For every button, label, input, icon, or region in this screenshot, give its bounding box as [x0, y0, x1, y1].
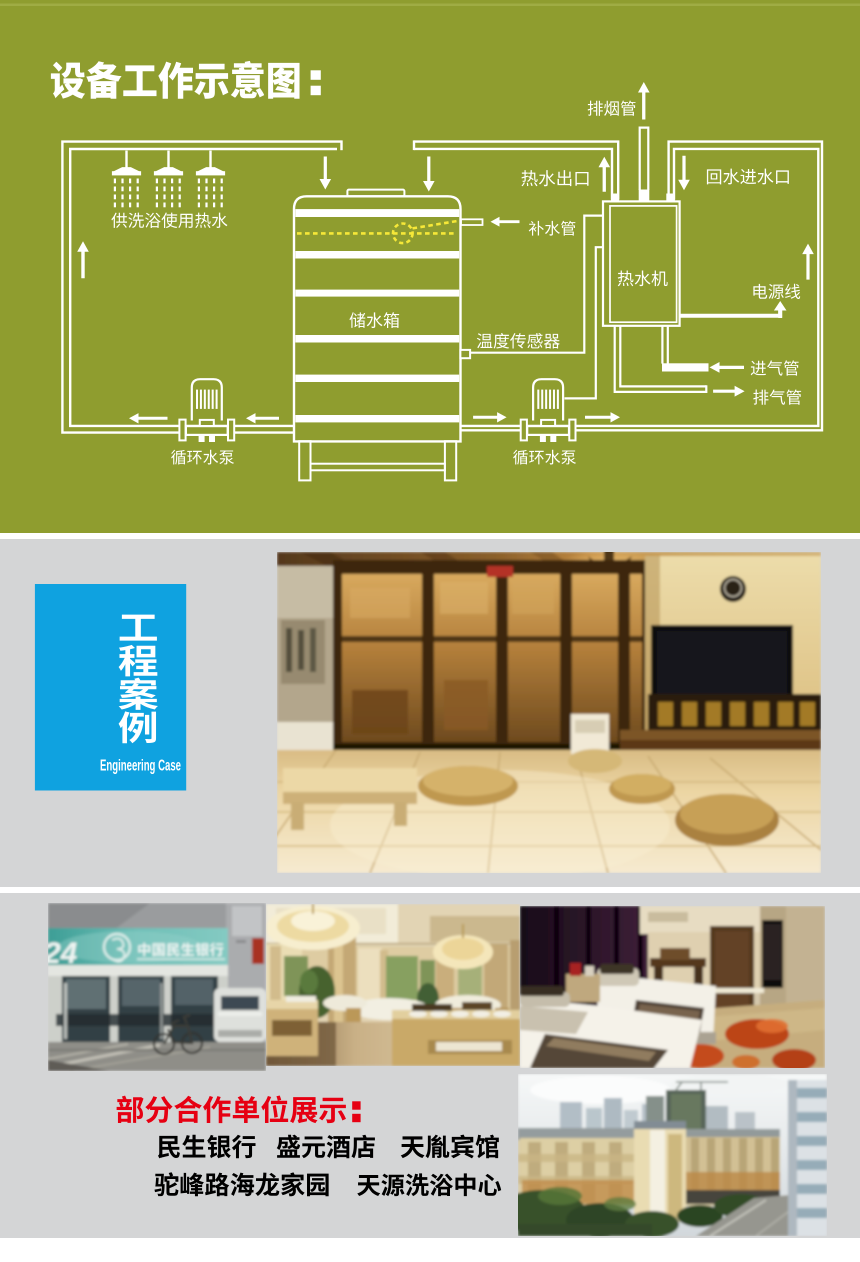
svg-text:Engineering Case: Engineering Case [100, 757, 181, 774]
